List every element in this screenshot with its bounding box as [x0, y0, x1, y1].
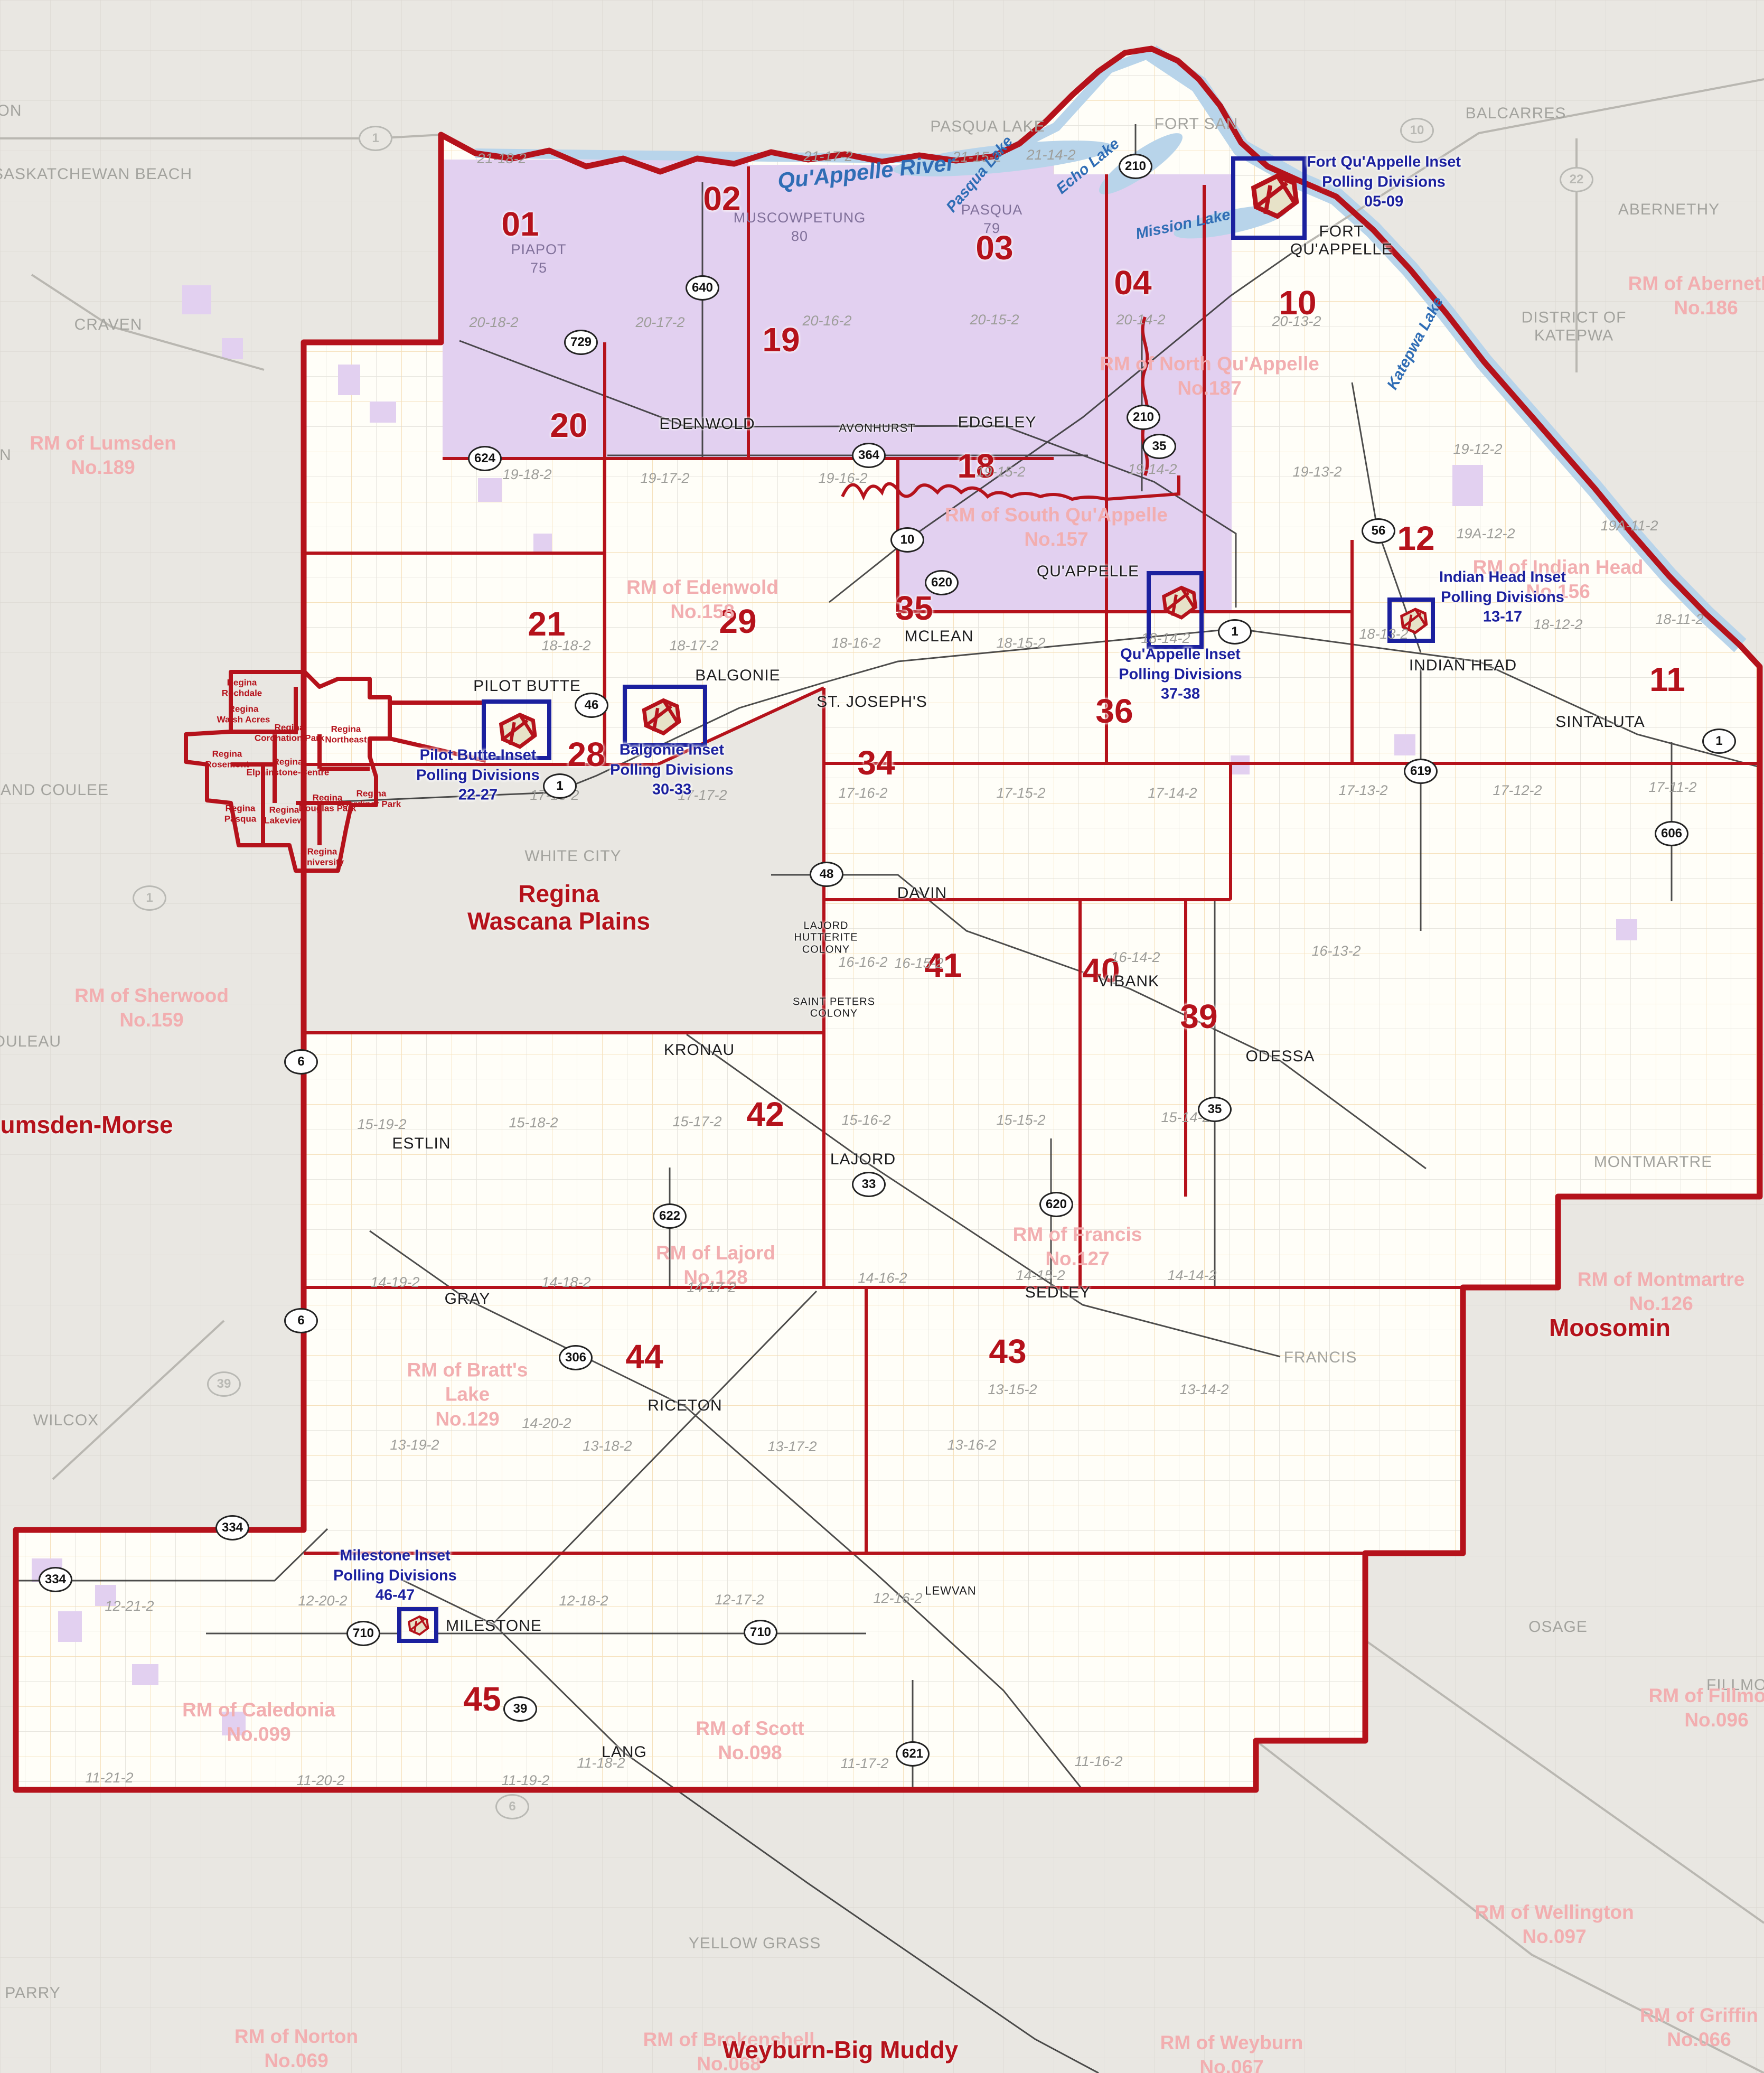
highway-shield-606: 606	[1655, 821, 1688, 846]
highway-shield-334: 334	[215, 1515, 249, 1540]
highway-shield-1: 1	[1702, 729, 1736, 754]
highway-shield-56: 56	[1362, 518, 1395, 544]
highway-shield-6: 6	[284, 1049, 318, 1075]
highway-shield-624: 624	[468, 446, 502, 471]
highway-shield-729: 729	[564, 330, 598, 355]
highway-shield-22: 22	[1560, 167, 1593, 192]
constituency-map: 0102030410192018122129353611283441403942…	[0, 0, 1764, 2073]
highway-shield-210: 210	[1119, 154, 1152, 179]
highway-shield-39: 39	[207, 1371, 241, 1397]
highway-shield-6: 6	[284, 1308, 318, 1333]
highway-shield-1: 1	[543, 773, 577, 799]
highway-shield-35: 35	[1198, 1097, 1232, 1122]
highway-shield-306: 306	[559, 1345, 593, 1370]
map-canvas	[0, 0, 1764, 2073]
highway-shield-710: 710	[346, 1621, 380, 1646]
highway-shield-1: 1	[1218, 619, 1252, 645]
highway-shield-46: 46	[575, 693, 608, 718]
highway-shield-33: 33	[852, 1172, 886, 1197]
highway-shield-210: 210	[1127, 405, 1160, 430]
reserve-area-pasqua-79	[898, 174, 1232, 612]
highway-shield-1: 1	[133, 885, 166, 911]
highway-shield-1: 1	[359, 126, 392, 151]
highway-shield-48: 48	[810, 862, 843, 887]
highway-shield-620: 620	[1039, 1192, 1073, 1217]
highway-shield-619: 619	[1404, 759, 1438, 784]
highway-shield-10: 10	[890, 527, 924, 553]
highway-shield-39: 39	[503, 1696, 537, 1722]
highway-shield-10: 10	[1400, 118, 1434, 143]
highway-shield-6: 6	[495, 1794, 529, 1819]
highway-shield-620: 620	[925, 570, 959, 595]
highway-shield-35: 35	[1142, 434, 1176, 459]
highway-shield-622: 622	[653, 1203, 687, 1229]
highway-shield-364: 364	[852, 443, 886, 468]
highway-shield-640: 640	[686, 275, 719, 301]
highway-shield-710: 710	[744, 1620, 777, 1645]
highway-shield-621: 621	[896, 1741, 930, 1767]
highway-shield-334: 334	[39, 1567, 72, 1592]
